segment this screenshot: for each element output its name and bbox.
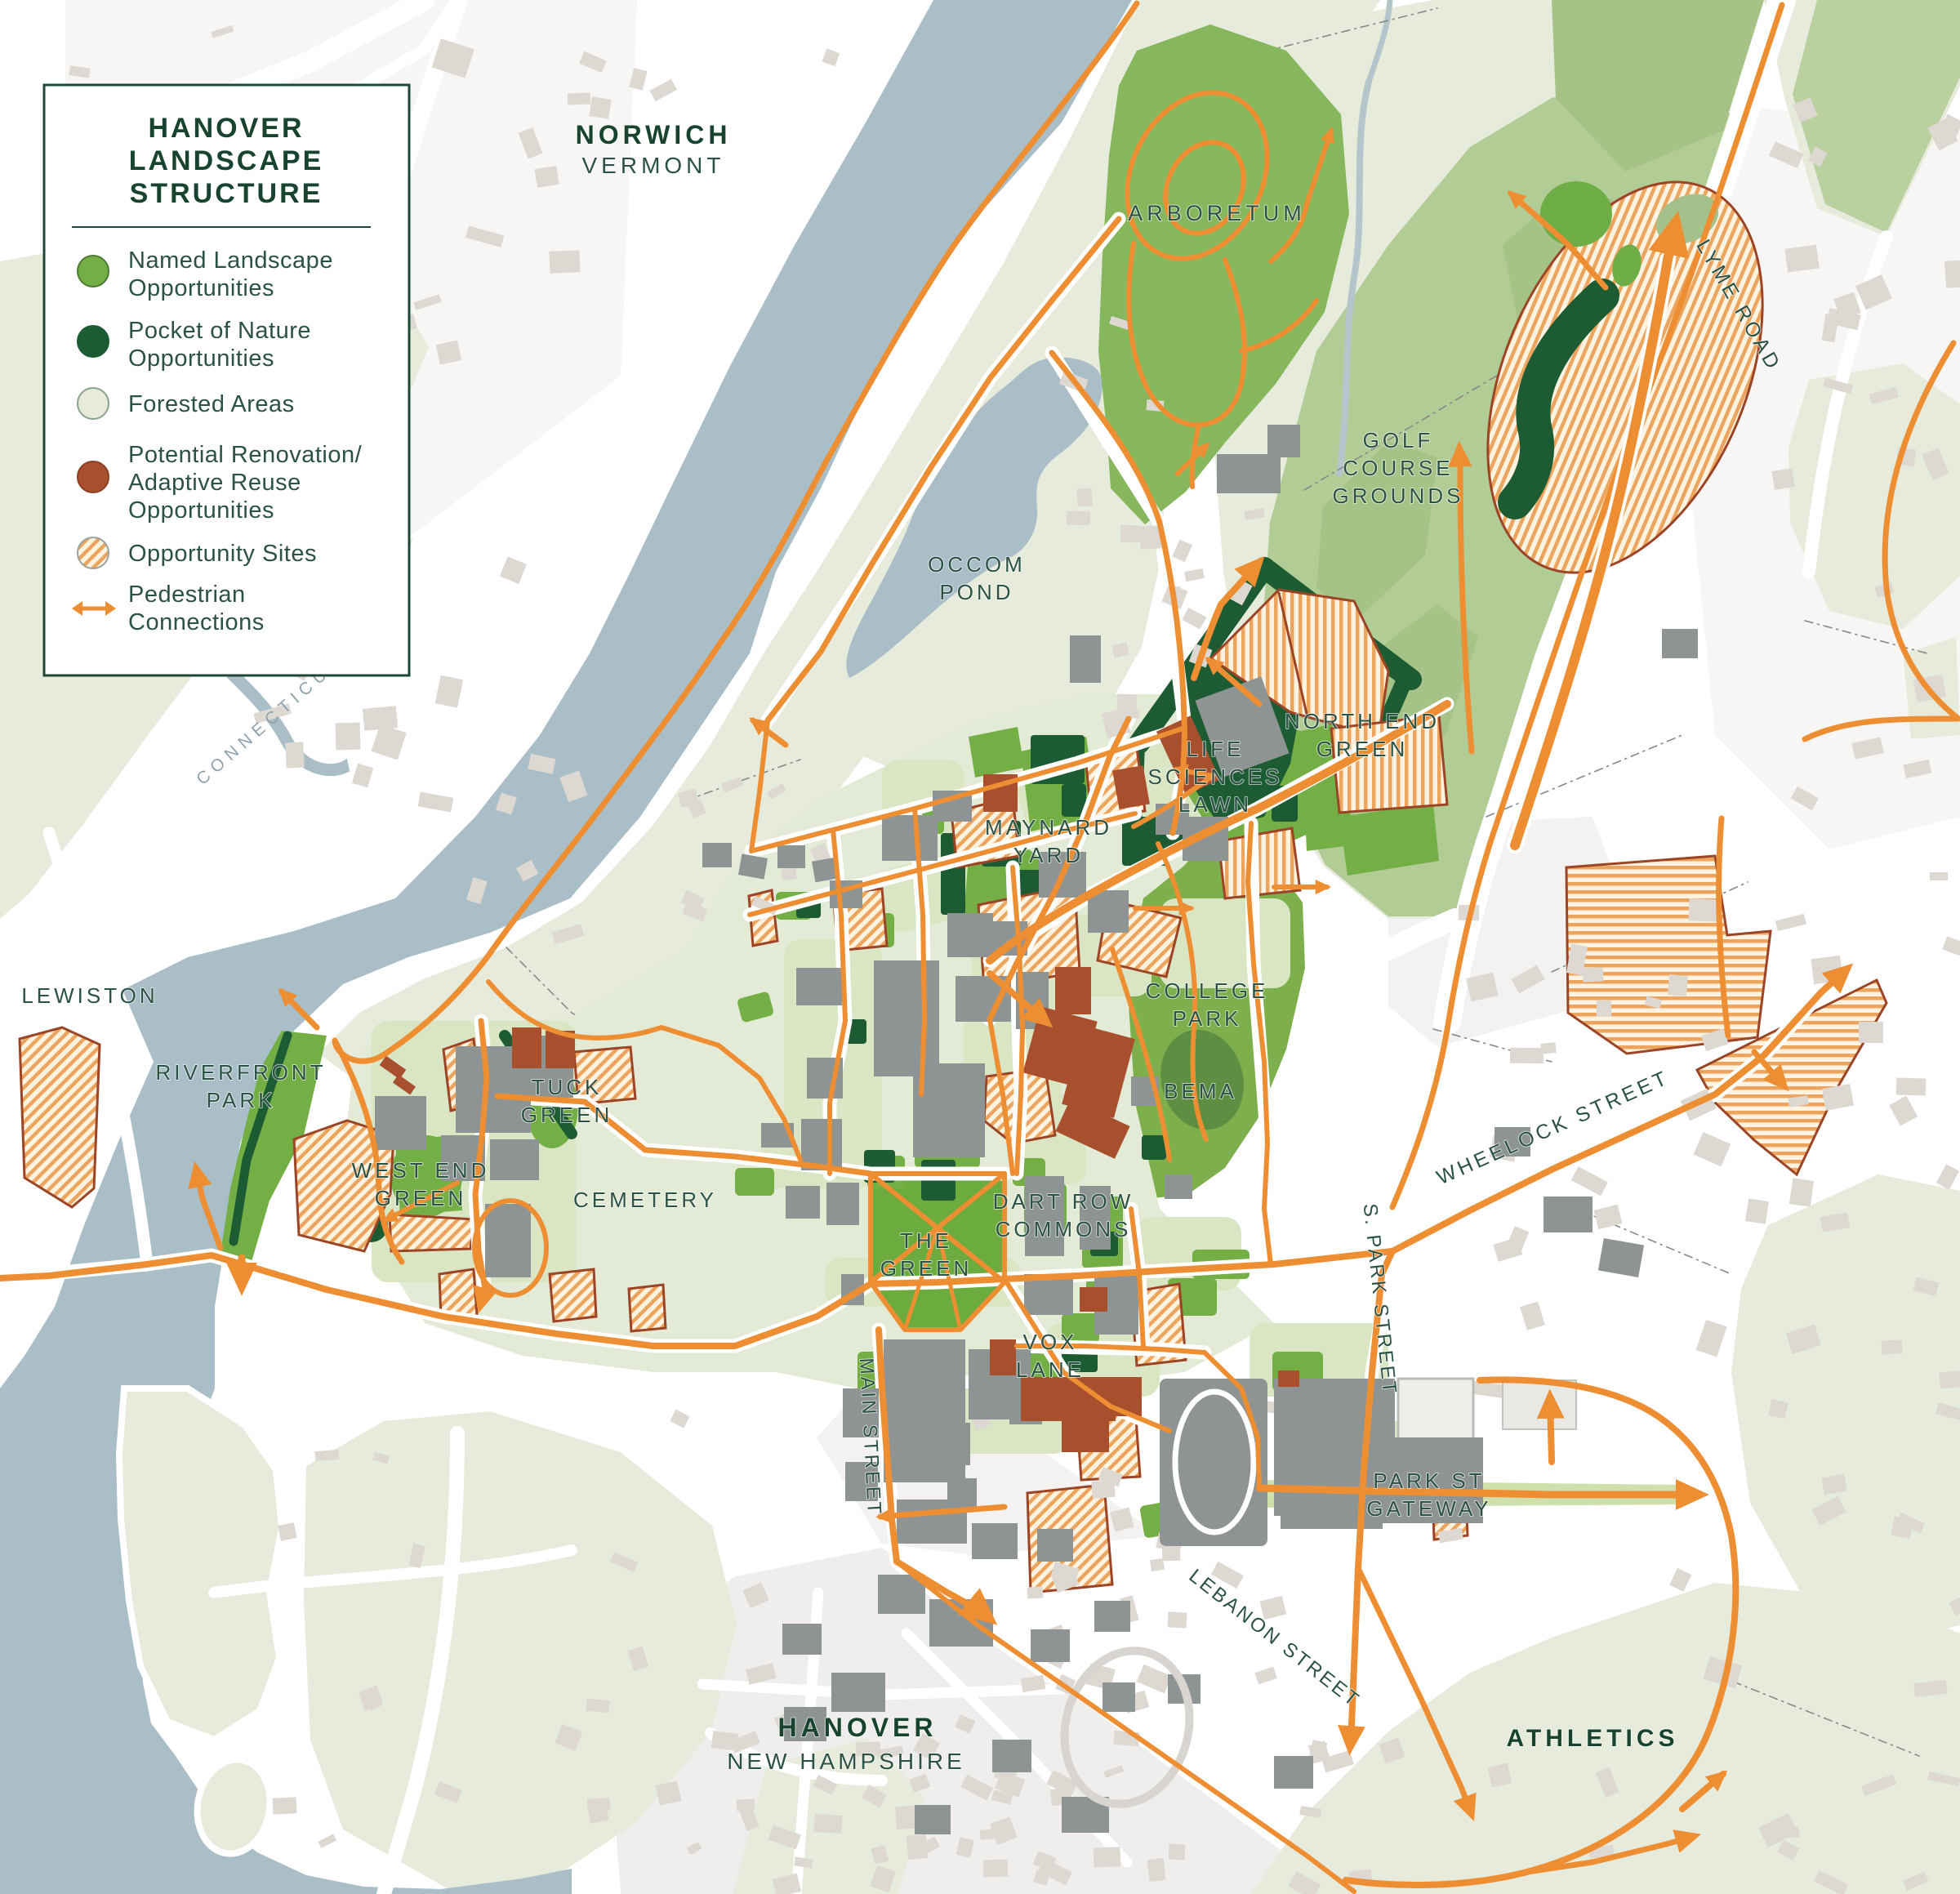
svg-text:Named Landscape: Named Landscape bbox=[128, 247, 333, 274]
svg-text:TUCK: TUCK bbox=[532, 1075, 603, 1099]
svg-text:HANOVER: HANOVER bbox=[777, 1713, 937, 1742]
svg-text:OCCOM: OCCOM bbox=[928, 552, 1026, 577]
svg-text:Pocket of Nature: Pocket of Nature bbox=[128, 318, 311, 344]
svg-text:CEMETERY: CEMETERY bbox=[573, 1188, 717, 1212]
svg-text:VERMONT: VERMONT bbox=[582, 153, 725, 178]
svg-text:PARK: PARK bbox=[1173, 1006, 1242, 1031]
svg-text:RIVERFRONT: RIVERFRONT bbox=[156, 1060, 327, 1085]
svg-text:NORTH END: NORTH END bbox=[1285, 709, 1440, 733]
svg-text:LAWN: LAWN bbox=[1178, 792, 1252, 817]
svg-text:GOLF: GOLF bbox=[1363, 428, 1434, 452]
svg-text:LANE: LANE bbox=[1016, 1357, 1085, 1382]
svg-text:GROUNDS: GROUNDS bbox=[1333, 484, 1464, 508]
svg-text:COMMONS: COMMONS bbox=[996, 1217, 1132, 1241]
svg-text:LANDSCAPE: LANDSCAPE bbox=[129, 145, 324, 176]
svg-text:Connections: Connections bbox=[128, 609, 265, 635]
svg-text:Forested Areas: Forested Areas bbox=[128, 391, 295, 417]
svg-text:PARK ST: PARK ST bbox=[1373, 1468, 1485, 1493]
svg-text:GREEN: GREEN bbox=[880, 1256, 972, 1281]
svg-text:Opportunities: Opportunities bbox=[128, 345, 274, 372]
svg-text:BEMA: BEMA bbox=[1164, 1079, 1237, 1103]
svg-text:LIFE: LIFE bbox=[1187, 737, 1245, 761]
svg-text:MAYNARD: MAYNARD bbox=[985, 815, 1112, 840]
svg-text:GREEN: GREEN bbox=[375, 1186, 466, 1210]
svg-text:THE: THE bbox=[900, 1228, 952, 1253]
svg-text:COLLEGE: COLLEGE bbox=[1146, 978, 1269, 1003]
svg-text:DART ROW: DART ROW bbox=[993, 1189, 1134, 1214]
svg-text:Potential Renovation/: Potential Renovation/ bbox=[128, 442, 363, 468]
svg-text:VOX: VOX bbox=[1023, 1330, 1078, 1354]
svg-text:COURSE: COURSE bbox=[1343, 456, 1453, 480]
svg-text:PARK: PARK bbox=[207, 1088, 276, 1112]
svg-text:NORWICH: NORWICH bbox=[576, 120, 732, 149]
svg-text:ARBORETUM: ARBORETUM bbox=[1128, 201, 1306, 225]
svg-text:Adaptive Reuse: Adaptive Reuse bbox=[128, 470, 301, 496]
svg-text:GREEN: GREEN bbox=[521, 1103, 612, 1127]
svg-text:YARD: YARD bbox=[1013, 843, 1084, 867]
svg-text:NEW HAMPSHIRE: NEW HAMPSHIRE bbox=[727, 1749, 965, 1774]
svg-text:POND: POND bbox=[939, 580, 1013, 604]
svg-text:ATHLETICS: ATHLETICS bbox=[1506, 1725, 1678, 1752]
svg-text:GREEN: GREEN bbox=[1316, 737, 1408, 761]
svg-text:WEST END: WEST END bbox=[352, 1158, 490, 1183]
svg-text:HANOVER: HANOVER bbox=[148, 113, 304, 144]
svg-text:Opportunities: Opportunities bbox=[128, 275, 274, 301]
svg-text:GATEWAY: GATEWAY bbox=[1366, 1496, 1491, 1521]
svg-text:STRUCTURE: STRUCTURE bbox=[130, 178, 323, 209]
svg-text:LEWISTON: LEWISTON bbox=[21, 983, 158, 1008]
svg-text:Opportunities: Opportunities bbox=[128, 497, 274, 524]
svg-text:Opportunity Sites: Opportunity Sites bbox=[128, 541, 317, 567]
svg-text:SCIENCES: SCIENCES bbox=[1148, 764, 1283, 789]
svg-text:Pedestrian: Pedestrian bbox=[128, 582, 246, 608]
